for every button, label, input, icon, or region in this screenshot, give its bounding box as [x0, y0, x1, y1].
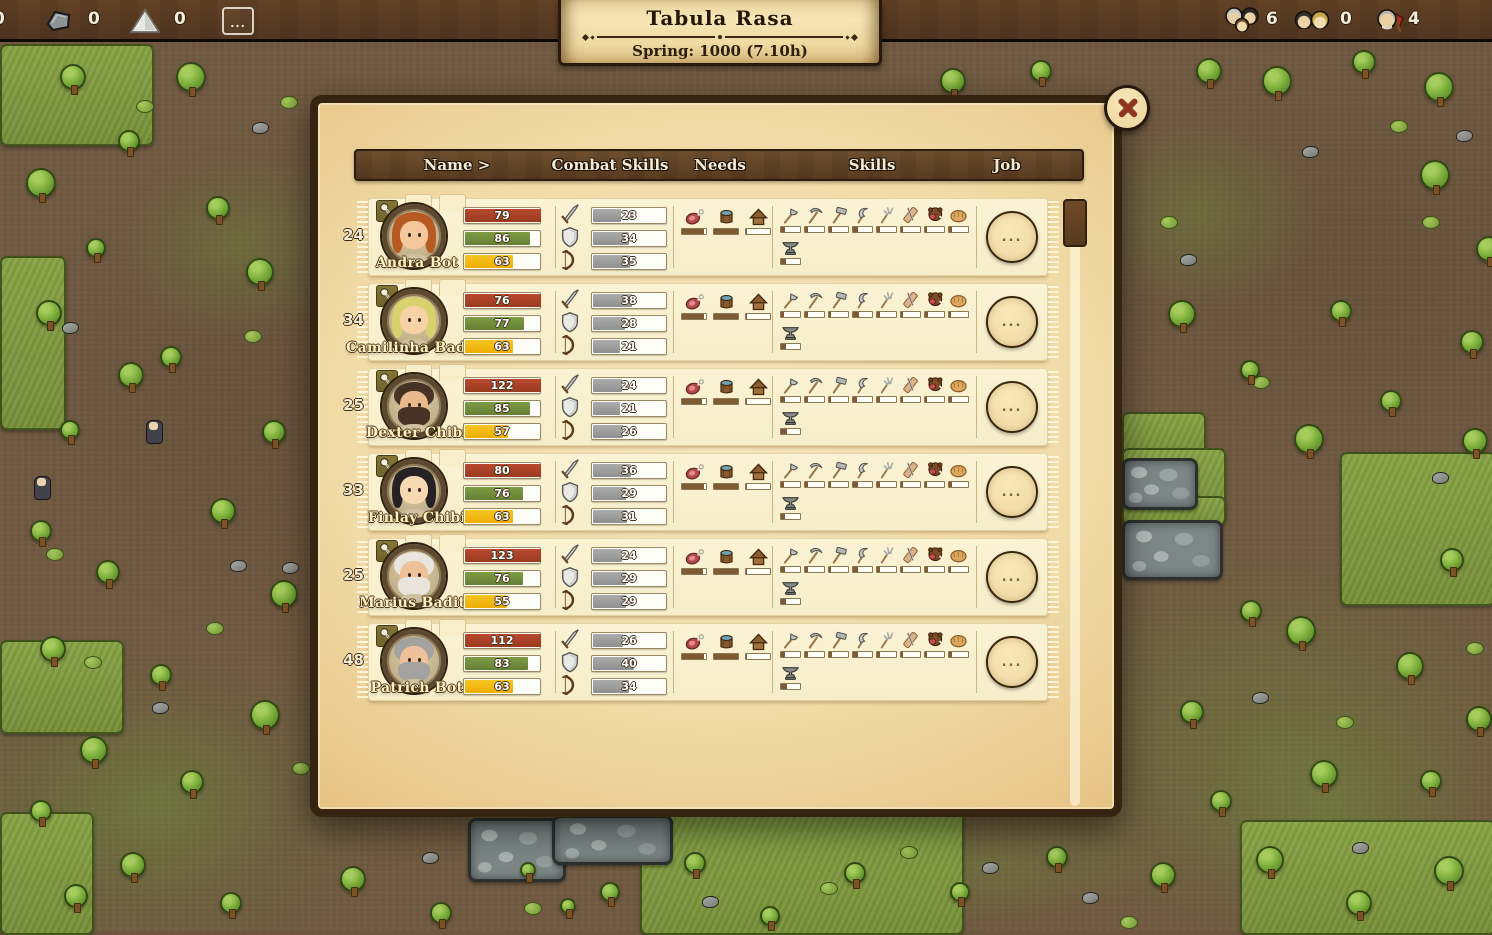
job-button[interactable]: ...	[986, 466, 1038, 518]
shield-icon	[559, 566, 581, 588]
tree	[1262, 66, 1292, 96]
pitchfork-icon	[876, 460, 897, 488]
tree	[30, 520, 52, 542]
tree	[96, 560, 120, 584]
shield-icon	[559, 651, 581, 673]
bread-icon	[948, 290, 969, 318]
animal-icon	[924, 630, 945, 658]
banner-divider	[583, 34, 857, 40]
tree	[1180, 700, 1204, 724]
tree	[250, 700, 280, 730]
job-button[interactable]: ...	[986, 636, 1038, 688]
rock	[1180, 254, 1197, 266]
sickle-icon	[852, 460, 873, 488]
bow-icon	[559, 419, 581, 441]
tree	[1420, 160, 1450, 190]
value-bar: 55	[463, 593, 541, 610]
tree	[1286, 616, 1316, 646]
axe-icon	[780, 290, 801, 318]
shield-icon	[559, 481, 581, 503]
tree	[1256, 846, 1284, 874]
needs-indicators	[681, 547, 771, 575]
shelter-icon	[745, 547, 771, 575]
combat-bars: 242126	[591, 377, 667, 446]
animal-icon	[924, 545, 945, 573]
stone-pad	[1122, 458, 1198, 510]
hammer-icon	[828, 290, 849, 318]
tree	[1460, 330, 1484, 354]
tree	[560, 898, 576, 914]
tree	[1380, 390, 1402, 412]
rock	[62, 322, 79, 334]
tree	[1440, 548, 1464, 572]
tree	[1466, 706, 1492, 732]
more-resources-button[interactable]: ...	[222, 7, 254, 35]
value-bar: 122	[463, 377, 541, 394]
column-header-name[interactable]: Name >	[424, 156, 491, 174]
rock	[1252, 692, 1269, 704]
tree	[844, 862, 866, 884]
skill-indicators	[780, 545, 975, 605]
needs-indicators	[681, 462, 771, 490]
roster-header: Name > Combat Skills Needs Skills Job	[354, 149, 1084, 181]
axe-icon	[780, 205, 801, 233]
close-button[interactable]	[1104, 85, 1150, 131]
tree	[1352, 50, 1376, 74]
food-icon	[681, 377, 707, 405]
tree	[1420, 770, 1442, 792]
stat-bars: 1237655	[463, 547, 541, 616]
job-label: ...	[1002, 570, 1023, 585]
rock	[982, 862, 999, 874]
tree	[206, 196, 230, 220]
animal-icon	[924, 205, 945, 233]
skill-indicators	[780, 460, 975, 520]
job-label: ...	[1002, 315, 1023, 330]
sand-count: 0	[174, 9, 186, 29]
combat-bars: 382821	[591, 292, 667, 361]
tree	[246, 258, 274, 286]
value-bar: 29	[591, 485, 667, 502]
value-bar: 76	[463, 570, 541, 587]
row-tab[interactable]	[439, 534, 466, 551]
bush	[1160, 216, 1178, 229]
adults-count: 0	[1340, 9, 1352, 29]
villager-age: 48	[338, 651, 364, 669]
tree	[118, 362, 144, 388]
job-button[interactable]: ...	[986, 296, 1038, 348]
date-playtime: Spring: 1000 (7.10h)	[561, 42, 879, 60]
villager-age: 24	[338, 226, 364, 244]
value-bar: 29	[591, 593, 667, 610]
combat-bars: 242929	[591, 547, 667, 616]
value-bar: 63	[463, 678, 541, 695]
row-tab[interactable]	[439, 279, 466, 296]
rock	[152, 702, 169, 714]
food-icon	[681, 547, 707, 575]
tree	[950, 882, 970, 902]
value-bar: 85	[463, 400, 541, 417]
villager-age: 25	[338, 396, 364, 414]
roster-rows: 24 Andra Bot 798663 233435	[368, 198, 1048, 708]
tree	[760, 906, 780, 926]
bow-icon	[559, 334, 581, 356]
value-bar: 38	[591, 292, 667, 309]
villager-row[interactable]: 25 Dexter Chibi 1228557 242126	[368, 368, 1048, 446]
anvil-icon	[780, 662, 801, 690]
shelter-icon	[745, 632, 771, 660]
hammer-icon	[828, 545, 849, 573]
map-villager	[146, 420, 163, 444]
tree	[940, 68, 966, 94]
column-header-combat[interactable]: Combat Skills	[552, 156, 669, 174]
bread-icon	[948, 630, 969, 658]
tree	[220, 892, 242, 914]
axe-icon	[780, 630, 801, 658]
stat-bars: 1128363	[463, 632, 541, 701]
drink-icon	[713, 377, 739, 405]
rock	[1352, 842, 1369, 854]
pitchfork-icon	[876, 545, 897, 573]
resource-count: 0	[0, 9, 5, 29]
needs-indicators	[681, 377, 771, 405]
bread-icon	[948, 205, 969, 233]
row-tab[interactable]	[439, 449, 466, 466]
pickaxe-icon	[804, 460, 825, 488]
bow-icon	[559, 589, 581, 611]
map-villager	[34, 476, 51, 500]
tree	[1462, 428, 1488, 454]
shield-icon	[559, 396, 581, 418]
column-header-needs[interactable]: Needs	[694, 156, 746, 174]
rock	[252, 122, 269, 134]
bush	[1390, 120, 1408, 133]
tree	[1150, 862, 1176, 888]
sand-icon	[128, 8, 162, 34]
value-bar: 83	[463, 655, 541, 672]
animal-icon	[924, 375, 945, 403]
needs-indicators	[681, 632, 771, 660]
villager-row[interactable]: 34 Camilinha Badita 767763 382821	[368, 283, 1048, 361]
avatar-face	[400, 221, 428, 249]
stat-bars: 807663	[463, 462, 541, 531]
value-bar: 80	[463, 462, 541, 479]
bread-icon	[948, 375, 969, 403]
scrollbar-track[interactable]	[1070, 198, 1080, 806]
tree	[340, 866, 366, 892]
tree	[1476, 236, 1492, 262]
tree	[1210, 790, 1232, 812]
animal-icon	[924, 290, 945, 318]
value-bar: 36	[591, 462, 667, 479]
drink-icon	[713, 292, 739, 320]
job-label: ...	[1002, 655, 1023, 670]
shelter-icon	[745, 377, 771, 405]
tree	[270, 580, 298, 608]
sword-icon	[559, 203, 581, 225]
sickle-icon	[852, 630, 873, 658]
pickaxe-icon	[804, 375, 825, 403]
butcher-icon	[900, 290, 921, 318]
avatar-face	[400, 306, 428, 334]
sickle-icon	[852, 290, 873, 318]
anvil-icon	[780, 407, 801, 435]
value-bar: 34	[591, 230, 667, 247]
tree	[64, 884, 88, 908]
tree	[1168, 300, 1196, 328]
tree	[120, 852, 146, 878]
avatar-face	[400, 476, 428, 504]
sword-icon	[559, 288, 581, 310]
tree	[1434, 856, 1464, 886]
settlement-banner: Tabula Rasa Spring: 1000 (7.10h)	[558, 0, 882, 66]
shelter-icon	[745, 462, 771, 490]
combat-bars: 233435	[591, 207, 667, 276]
rock	[1432, 472, 1449, 484]
job-button[interactable]: ...	[986, 381, 1038, 433]
pitchfork-icon	[876, 630, 897, 658]
stone-count: 0	[88, 9, 100, 29]
tree	[180, 770, 204, 794]
bush	[524, 902, 542, 915]
tree	[520, 862, 536, 878]
tree	[1294, 424, 1324, 454]
anvil-icon	[780, 577, 801, 605]
drink-icon	[713, 207, 739, 235]
value-bar: 79	[463, 207, 541, 224]
hammer-icon	[828, 630, 849, 658]
family-count: 6	[1266, 9, 1278, 29]
rock	[1456, 130, 1473, 142]
bush	[136, 100, 154, 113]
row-tab[interactable]	[439, 619, 466, 636]
food-icon	[681, 632, 707, 660]
value-bar: 31	[591, 508, 667, 525]
butcher-icon	[900, 630, 921, 658]
tree	[1424, 72, 1454, 102]
value-bar: 77	[463, 315, 541, 332]
value-bar: 63	[463, 508, 541, 525]
family-icon	[1224, 5, 1260, 35]
tree	[36, 300, 62, 326]
tree	[1396, 652, 1424, 680]
value-bar: 76	[463, 292, 541, 309]
villager-roster-dialog: Name > Combat Skills Needs Skills Job 24…	[310, 95, 1122, 817]
value-bar: 28	[591, 315, 667, 332]
axe-icon	[780, 545, 801, 573]
axe-icon	[780, 375, 801, 403]
value-bar: 21	[591, 338, 667, 355]
value-bar: 123	[463, 547, 541, 564]
bow-icon	[559, 674, 581, 696]
value-bar: 35	[591, 253, 667, 270]
villager-age: 25	[338, 566, 364, 584]
value-bar: 57	[463, 423, 541, 440]
tree	[80, 736, 108, 764]
needs-indicators	[681, 292, 771, 320]
value-bar: 24	[591, 547, 667, 564]
skill-indicators	[780, 290, 975, 350]
stat-bars: 1228557	[463, 377, 541, 446]
sword-icon	[559, 458, 581, 480]
bush	[1422, 216, 1440, 229]
value-bar: 29	[591, 570, 667, 587]
tree	[1240, 600, 1262, 622]
pitchfork-icon	[876, 290, 897, 318]
villager-age: 33	[338, 481, 364, 499]
villager-row[interactable]: 33 Finlay Chibi 807663 362931	[368, 453, 1048, 531]
value-bar: 86	[463, 230, 541, 247]
animal-icon	[924, 460, 945, 488]
grass-patch	[0, 812, 94, 935]
tree	[150, 664, 172, 686]
butcher-icon	[900, 375, 921, 403]
value-bar: 26	[591, 632, 667, 649]
value-bar: 23	[591, 207, 667, 224]
bush	[244, 330, 262, 343]
adults-icon	[1294, 6, 1330, 36]
villager-row[interactable]: 24 Andra Bot 798663 233435	[368, 198, 1048, 276]
tree	[160, 346, 182, 368]
tree	[684, 852, 706, 874]
bread-icon	[948, 545, 969, 573]
job-label: ...	[1002, 485, 1023, 500]
value-bar: 24	[591, 377, 667, 394]
shelter-icon	[745, 292, 771, 320]
axe-icon	[780, 460, 801, 488]
butcher-icon	[900, 545, 921, 573]
pickaxe-icon	[804, 205, 825, 233]
value-bar: 63	[463, 338, 541, 355]
shield-icon	[559, 226, 581, 248]
pickaxe-icon	[804, 630, 825, 658]
rock	[230, 560, 247, 572]
hammer-icon	[828, 460, 849, 488]
food-icon	[681, 207, 707, 235]
bush	[900, 846, 918, 859]
tree	[60, 64, 86, 90]
drink-icon	[713, 632, 739, 660]
skill-indicators	[780, 375, 975, 435]
hammer-icon	[828, 205, 849, 233]
job-label: ...	[1002, 400, 1023, 415]
stone-icon	[42, 8, 76, 34]
column-header-skills[interactable]: Skills	[849, 156, 896, 174]
pickaxe-icon	[804, 545, 825, 573]
job-button[interactable]: ...	[986, 211, 1038, 263]
bush	[292, 762, 310, 775]
tree	[600, 882, 620, 902]
tree	[1046, 846, 1068, 868]
tree	[1240, 360, 1260, 380]
rock	[282, 562, 299, 574]
tree	[86, 238, 106, 258]
combat-bars: 264034	[591, 632, 667, 701]
sword-icon	[559, 373, 581, 395]
bush	[46, 548, 64, 561]
bow-icon	[559, 249, 581, 271]
villager-row[interactable]: 48 Patrich Bot 1128363 264034	[368, 623, 1048, 701]
tree	[60, 420, 80, 440]
value-bar: 63	[463, 253, 541, 270]
bush	[1336, 716, 1354, 729]
worker-count: 4	[1408, 9, 1420, 29]
food-icon	[681, 292, 707, 320]
drink-icon	[713, 462, 739, 490]
grass-patch	[0, 256, 66, 430]
food-icon	[681, 462, 707, 490]
bush	[1466, 642, 1484, 655]
tree	[118, 130, 140, 152]
scrollbar-thumb[interactable]	[1063, 199, 1087, 247]
drink-icon	[713, 547, 739, 575]
sickle-icon	[852, 375, 873, 403]
shield-icon	[559, 311, 581, 333]
sickle-icon	[852, 205, 873, 233]
value-bar: 112	[463, 632, 541, 649]
villager-age: 34	[338, 311, 364, 329]
rock	[422, 852, 439, 864]
bow-icon	[559, 504, 581, 526]
hammer-icon	[828, 375, 849, 403]
tree	[1346, 890, 1372, 916]
tree	[262, 420, 286, 444]
needs-indicators	[681, 207, 771, 235]
skill-indicators	[780, 205, 975, 265]
sickle-icon	[852, 545, 873, 573]
stat-bars: 767763	[463, 292, 541, 361]
rock	[1082, 892, 1099, 904]
settlement-name: Tabula Rasa	[561, 6, 879, 30]
worker-icon	[1374, 5, 1406, 35]
tree	[40, 636, 66, 662]
shelter-icon	[745, 207, 771, 235]
stone-pad	[552, 815, 673, 865]
job-button[interactable]: ...	[986, 551, 1038, 603]
job-label: ...	[1002, 230, 1023, 245]
tree	[1330, 300, 1352, 322]
tree	[30, 800, 52, 822]
bush	[1120, 916, 1138, 929]
sword-icon	[559, 628, 581, 650]
sword-icon	[559, 543, 581, 565]
column-header-job[interactable]: Job	[993, 156, 1021, 174]
tree	[1196, 58, 1222, 84]
bush	[280, 96, 298, 109]
stat-bars: 798663	[463, 207, 541, 276]
butcher-icon	[900, 205, 921, 233]
bush	[206, 622, 224, 635]
anvil-icon	[780, 237, 801, 265]
rock	[1302, 146, 1319, 158]
value-bar: 40	[591, 655, 667, 672]
grass-patch	[1340, 452, 1492, 606]
skill-indicators	[780, 630, 975, 690]
value-bar: 34	[591, 678, 667, 695]
tree	[430, 902, 452, 924]
pitchfork-icon	[876, 375, 897, 403]
pickaxe-icon	[804, 290, 825, 318]
row-tab[interactable]	[439, 194, 466, 211]
row-tab[interactable]	[439, 364, 466, 381]
value-bar: 26	[591, 423, 667, 440]
villager-row[interactable]: 25 Marius Badita 1237655 242929	[368, 538, 1048, 616]
bread-icon	[948, 460, 969, 488]
tree	[176, 62, 206, 92]
tree	[26, 168, 56, 198]
combat-bars: 362931	[591, 462, 667, 531]
value-bar: 21	[591, 400, 667, 417]
